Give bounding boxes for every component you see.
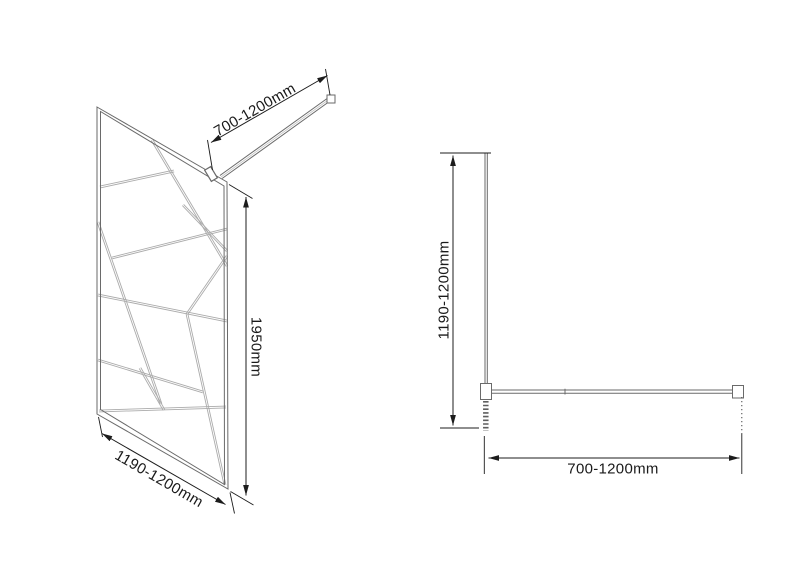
dim-label-plan-height: 1190-1200mm xyxy=(436,241,453,340)
technical-drawing-canvas: 700-1200mm 1950mm 1190-1200mm 1190-1200m… xyxy=(0,0,800,566)
dim-label-plan-width: 700-1200mm xyxy=(567,461,658,478)
panel-and-bar-outlines xyxy=(97,95,744,489)
dim-label-panel-height: 1950mm xyxy=(248,317,265,377)
drawing-svg xyxy=(0,0,800,566)
glass-pattern-lines xyxy=(97,140,228,486)
dimension-lines xyxy=(99,69,742,514)
